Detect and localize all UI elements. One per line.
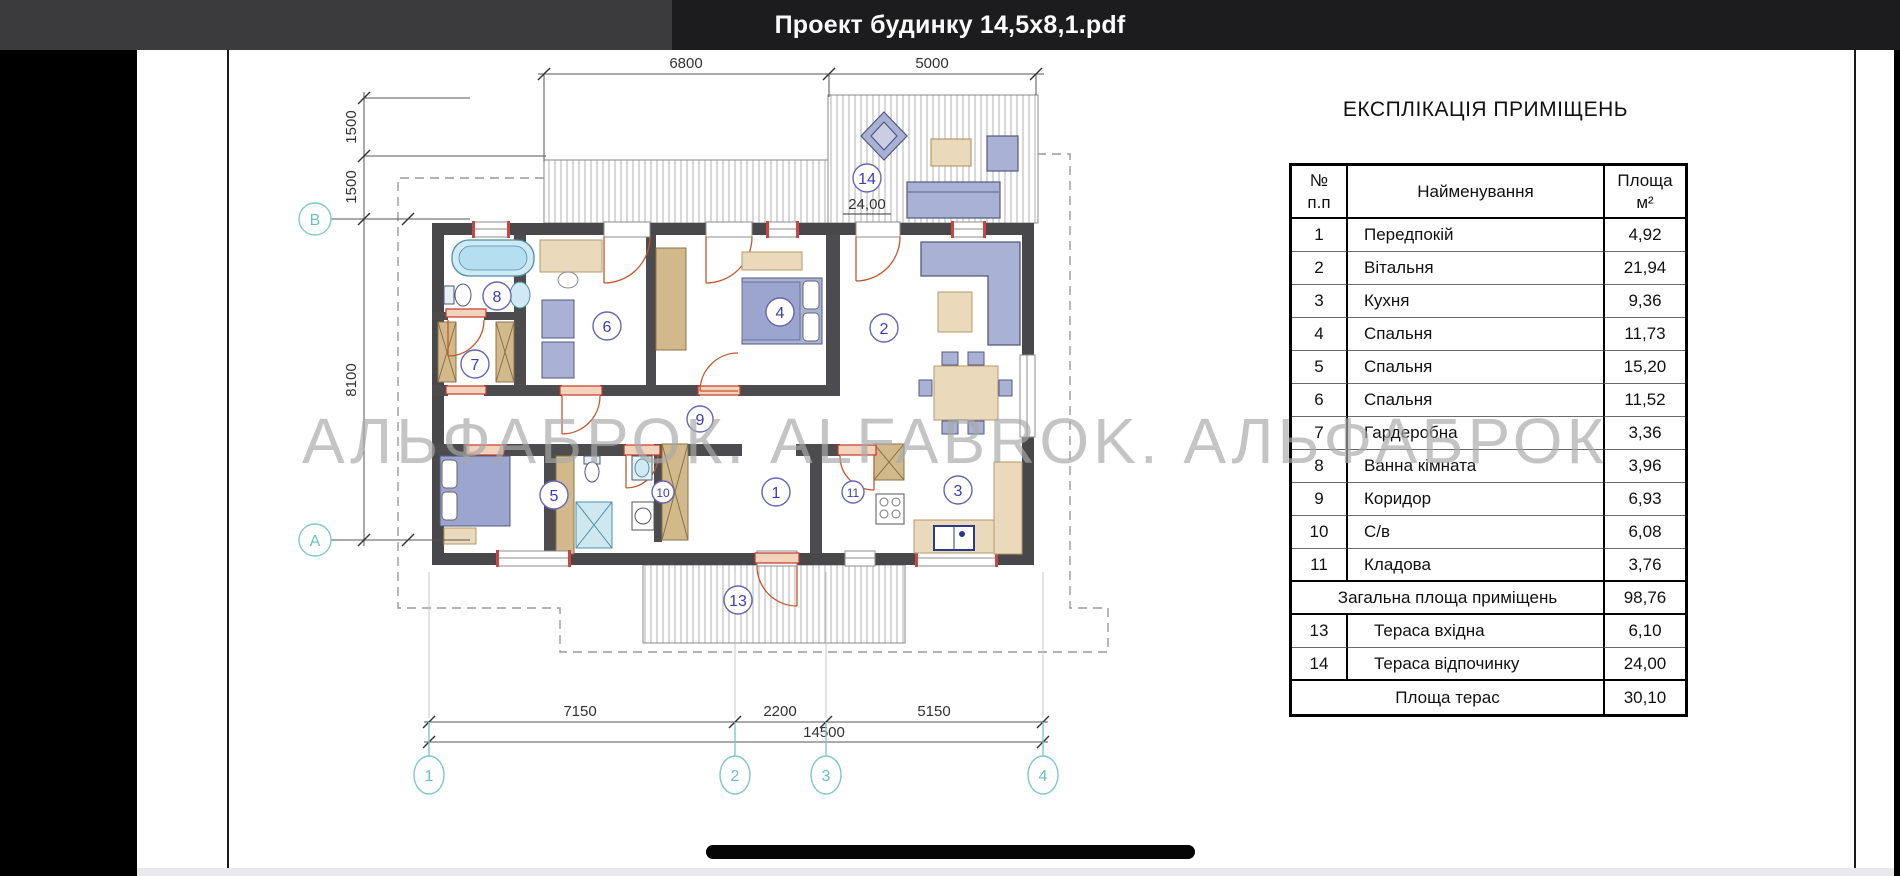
dim-bottom-7150: 7150: [563, 703, 596, 720]
grid-label-2: 2: [731, 768, 740, 785]
total-terrace-label: Площа терас: [1292, 681, 1603, 714]
dim-left-1500a: 1500: [343, 110, 360, 143]
terrace-area-label: 24,00: [848, 196, 886, 213]
terrace-row-name: Тераса відпочинку: [1348, 648, 1603, 681]
row-area: 15,20: [1603, 351, 1685, 384]
row-area: 3,96: [1603, 450, 1685, 483]
row-num: 1: [1292, 219, 1348, 252]
room-6: 6: [603, 319, 612, 336]
titlebar: Проект будинку 14,5х8,1.pdf: [0, 0, 1900, 50]
row-num: 8: [1292, 450, 1348, 483]
total-terrace-value: 30,10: [1603, 681, 1685, 714]
row-num: 2: [1292, 252, 1348, 285]
grid-label-1: 1: [425, 768, 434, 785]
col-header-num: № п.п: [1292, 166, 1348, 219]
room-3: 3: [954, 483, 963, 500]
total-rooms-label: Загальна площа приміщень: [1292, 582, 1603, 615]
dim-left-8100: 8100: [343, 363, 360, 396]
row-name: Спальня: [1348, 384, 1603, 417]
row-num: 7: [1292, 417, 1348, 450]
row-name: Вітальня: [1348, 252, 1603, 285]
row-area: 11,52: [1603, 384, 1685, 417]
dim-left-1500b: 1500: [343, 170, 360, 203]
grid-label-A: А: [310, 533, 321, 550]
terrace-row-area: 6,10: [1603, 615, 1685, 648]
row-area: 6,93: [1603, 483, 1685, 516]
explication-table: № п.п Найменування Площа м² 1Передпокій4…: [1289, 163, 1688, 717]
row-name: С/в: [1348, 516, 1603, 549]
col-header-name-label: Найменування: [1417, 181, 1534, 203]
room-7: 7: [471, 357, 480, 374]
room-9: 9: [696, 412, 705, 429]
row-area: 3,76: [1603, 549, 1685, 582]
terrace-row-name: Тераса вхідна: [1348, 615, 1603, 648]
room-14: 14: [858, 171, 876, 188]
grid-label-B: В: [310, 212, 321, 229]
room-1: 1: [772, 485, 781, 502]
room-11: 11: [847, 486, 860, 500]
dim-top-6800: 6800: [669, 55, 702, 72]
dim-top-5000: 5000: [915, 55, 948, 72]
row-num: 9: [1292, 483, 1348, 516]
room-5: 5: [550, 488, 559, 505]
explication-title: ЕКСПЛІКАЦІЯ ПРИМІЩЕНЬ: [1289, 98, 1682, 122]
screen: 6800 5000 1500 1500 8100 7150 2200 5150 …: [0, 0, 1900, 876]
grid-label-4: 4: [1039, 768, 1048, 785]
row-name: Гардеробна: [1348, 417, 1603, 450]
row-area: 3,36: [1603, 417, 1685, 450]
col-header-name: Найменування: [1348, 166, 1603, 219]
dim-bottom-5150: 5150: [917, 703, 950, 720]
room-8: 8: [493, 289, 502, 306]
row-name: Кладова: [1348, 549, 1603, 582]
row-area: 4,92: [1603, 219, 1685, 252]
row-num: 5: [1292, 351, 1348, 384]
grid-label-3: 3: [822, 768, 831, 785]
row-num: 6: [1292, 384, 1348, 417]
col-header-area: Площа м²: [1603, 166, 1685, 219]
row-name: Спальня: [1348, 318, 1603, 351]
document-title: Проект будинку 14,5х8,1.pdf: [0, 0, 1900, 50]
room-13: 13: [729, 593, 747, 610]
row-name: Передпокій: [1348, 219, 1603, 252]
terrace-row-num: 13: [1292, 615, 1348, 648]
row-name: Кухня: [1348, 285, 1603, 318]
row-name: Ванна кімната: [1348, 450, 1603, 483]
dim-bottom-14500: 14500: [803, 724, 845, 741]
total-rooms-value: 98,76: [1603, 582, 1685, 615]
row-num: 4: [1292, 318, 1348, 351]
col-header-num-line2: п.п: [1307, 192, 1330, 214]
home-indicator[interactable]: [706, 845, 1195, 859]
furniture: [440, 240, 1022, 554]
terrace-entry: [643, 565, 905, 643]
row-num: 3: [1292, 285, 1348, 318]
col-header-area-line1: Площа: [1617, 170, 1672, 192]
dim-bottom-2200: 2200: [763, 703, 796, 720]
row-num: 11: [1292, 549, 1348, 582]
row-area: 9,36: [1603, 285, 1685, 318]
row-num: 10: [1292, 516, 1348, 549]
room-2: 2: [880, 321, 889, 338]
room-4: 4: [776, 305, 785, 322]
row-area: 6,08: [1603, 516, 1685, 549]
row-area: 11,73: [1603, 318, 1685, 351]
row-name: Спальня: [1348, 351, 1603, 384]
terrace-row-area: 24,00: [1603, 648, 1685, 681]
terrace-row-num: 14: [1292, 648, 1348, 681]
row-area: 21,94: [1603, 252, 1685, 285]
room-10: 10: [656, 486, 670, 500]
row-name: Коридор: [1348, 483, 1603, 516]
col-header-area-line2: м²: [1636, 192, 1653, 214]
col-header-num-line1: №: [1310, 170, 1328, 192]
